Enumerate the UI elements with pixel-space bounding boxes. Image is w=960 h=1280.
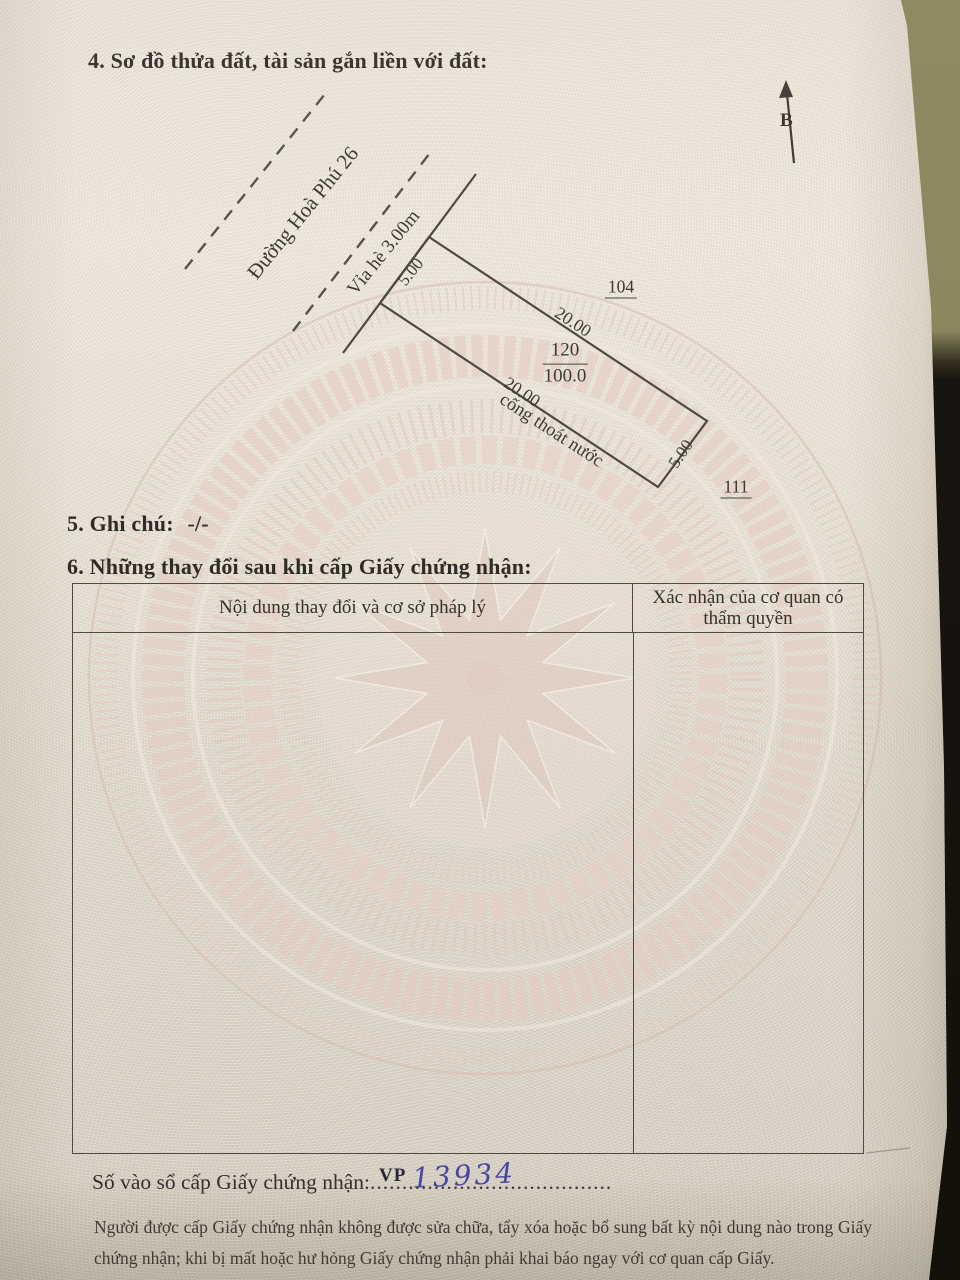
road-name-label: Đường Hoà Phú 26 [242,142,364,284]
road-dashed-line [185,89,329,269]
changes-cell-content [73,633,634,1153]
registry-line: Số vào sổ cấp Giấy chứng nhận: .........… [92,1168,872,1204]
registry-office-code: VP [379,1165,406,1187]
registry-handwritten-number: 13934 [411,1156,517,1194]
photo-backdrop: 4. Sơ đồ thửa đất, tài sản gắn liền với … [0,0,960,1280]
north-label: B [780,110,793,132]
section6-title: 6. Những thay đổi sau khi cấp Giấy chứng… [67,554,532,580]
back-dimension: 5.00 [664,436,697,472]
section5-value: -/- [179,511,208,536]
changes-table: Nội dung thay đổi và cơ sở pháp lý Xác n… [72,583,864,1154]
right-side-dimension: 20.00 [551,302,595,341]
parcel-number: 120 [543,341,588,365]
parcel-number-area: 120 100.0 [543,341,588,388]
col1-header: Nội dung thay đổi và cơ sở pháp lý [73,584,633,632]
footer-note: Người được cấp Giấy chứng nhận không đượ… [94,1212,872,1274]
parcel-area: 100.0 [543,365,588,388]
paper-crease [866,1148,910,1153]
changes-table-body [73,633,863,1153]
changes-table-header: Nội dung thay đổi và cơ sở pháp lý Xác n… [73,584,863,633]
section5-row: 5. Ghi chú: -/- [67,511,209,537]
section4-title: 4. Sơ đồ thửa đất, tài sản gắn liền với … [88,48,488,74]
frontage-dimension: 5.00 [394,254,428,290]
sidewalk-dashed-line [293,149,433,331]
registry-label: Số vào sổ cấp Giấy chứng nhận: [92,1170,370,1195]
changes-cell-confirmation [634,633,863,1153]
adjacent-parcel-bottom: 111 [721,477,752,499]
adjacent-parcel-top: 104 [605,277,637,299]
section5-label: 5. Ghi chú: [67,511,174,536]
drain-label: cống thoát nước [495,390,607,473]
certificate-page: 4. Sơ đồ thửa đất, tài sản gắn liền với … [0,0,960,1280]
col2-header: Xác nhận của cơ quan có thẩm quyền [633,584,863,632]
